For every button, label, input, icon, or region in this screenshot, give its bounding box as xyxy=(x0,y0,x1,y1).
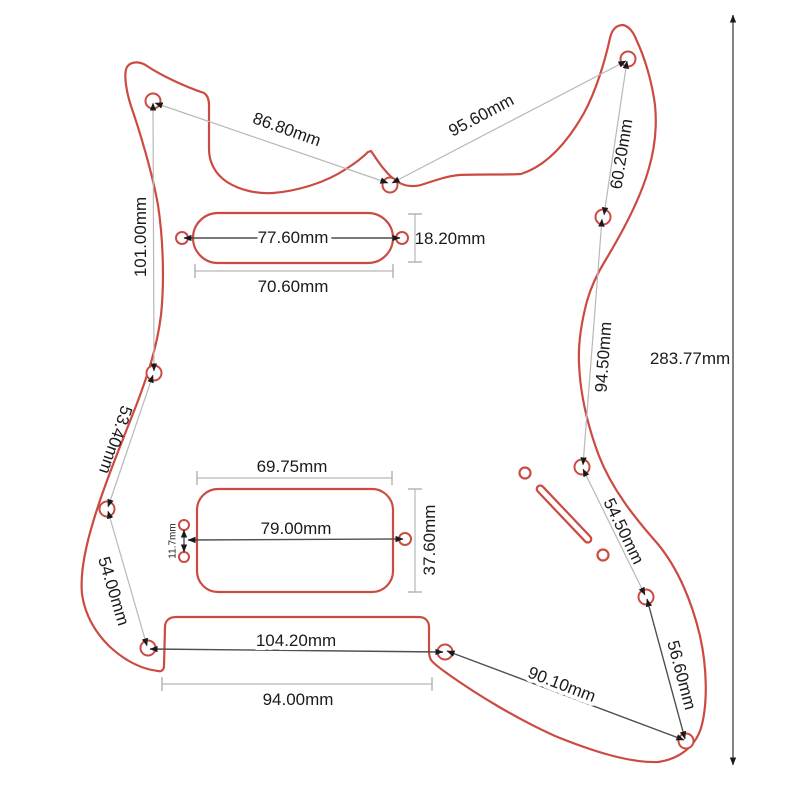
dim-label-94-50: 94.50mm xyxy=(592,321,616,393)
dim-line-94-00 xyxy=(162,677,432,691)
dim-label-56-60: 56.60mm xyxy=(663,638,700,711)
dim-label-101-00: 101.00mm xyxy=(131,197,150,277)
dim-label-53-40: 53.40mm xyxy=(95,403,136,476)
dim-label-11-7: 11.7mm xyxy=(168,523,179,558)
dim-label-18-20: 18.20mm xyxy=(415,229,486,248)
tremolo-arm-slot xyxy=(535,484,592,544)
dim-line-70-60 xyxy=(195,264,393,278)
dimension-labels: 86.80mm 95.60mm 101.00mm 53.40mm 54.00mm… xyxy=(94,90,730,711)
screw-holes xyxy=(100,52,694,749)
dim-line-79-00 xyxy=(188,539,403,540)
dim-label-77-60: 77.60mm xyxy=(258,228,329,247)
screw-hole-right-lower xyxy=(639,590,654,605)
dim-label-283-77: 283.77mm xyxy=(650,349,730,368)
mount-hole-upper xyxy=(520,468,531,479)
screw-hole-bottom-right-tip xyxy=(679,734,694,749)
screw-hole-right-mid xyxy=(575,460,590,475)
dim-label-54-00: 54.00mm xyxy=(94,554,133,627)
screw-hole-left-lower xyxy=(100,502,115,517)
dim-line-95-60 xyxy=(392,61,626,183)
screw-hole-right-upper xyxy=(596,210,611,225)
dim-label-79-00: 79.00mm xyxy=(261,519,332,538)
humbucker-screw-left-top xyxy=(179,520,189,530)
pickguard-dimension-diagram: 86.80mm 95.60mm 101.00mm 53.40mm 54.00mm… xyxy=(0,0,800,800)
dim-label-70-60: 70.60mm xyxy=(258,277,329,296)
dim-label-86-80: 86.80mm xyxy=(250,109,323,151)
dim-line-101-00 xyxy=(153,103,154,371)
screw-hole-neck-center xyxy=(383,178,398,193)
mount-hole-lower xyxy=(598,550,609,561)
dim-label-54-50: 54.50mm xyxy=(600,495,648,567)
dim-label-95-60: 95.60mm xyxy=(445,90,516,140)
dim-label-94-00: 94.00mm xyxy=(263,690,334,709)
screw-hole-bottom-left xyxy=(141,641,156,656)
dim-label-90-10: 90.10mm xyxy=(525,663,598,706)
dim-label-60-20: 60.20mm xyxy=(607,118,637,191)
dim-label-69-75: 69.75mm xyxy=(257,457,328,476)
dim-label-104-20: 104.20mm xyxy=(256,631,336,650)
dimension-lines xyxy=(108,15,733,765)
humbucker-screw-left-bottom xyxy=(179,552,189,562)
screw-hole-top-right-horn xyxy=(621,52,636,67)
dim-label-37-60: 37.60mm xyxy=(420,505,439,576)
diagram-canvas: 86.80mm 95.60mm 101.00mm 53.40mm 54.00mm… xyxy=(0,0,800,800)
